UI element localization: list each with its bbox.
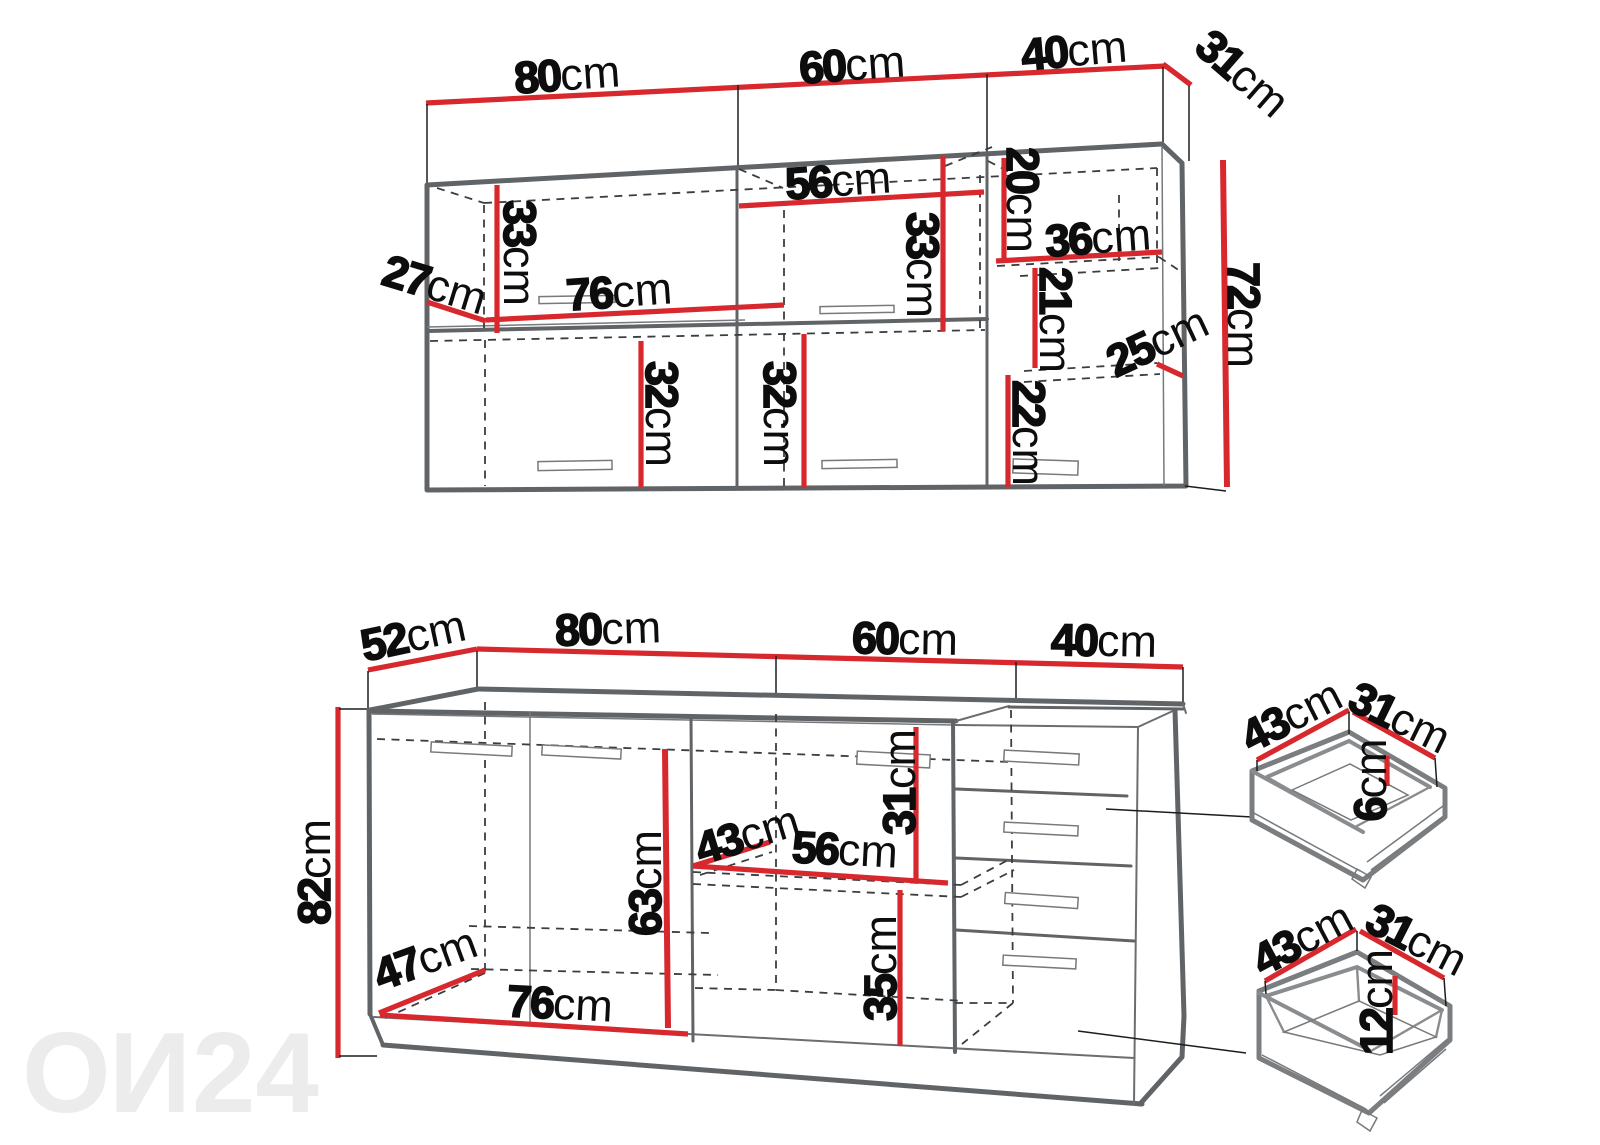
svg-text:21cm: 21cm — [1030, 267, 1081, 373]
svg-text:32cm: 32cm — [754, 361, 805, 467]
svg-text:56cm: 56cm — [783, 151, 892, 209]
svg-text:72cm: 72cm — [1218, 262, 1269, 368]
svg-text:80cm: 80cm — [512, 45, 621, 103]
svg-text:60cm: 60cm — [852, 612, 959, 665]
svg-text:40cm: 40cm — [1051, 614, 1158, 667]
svg-text:31cm: 31cm — [874, 729, 925, 835]
svg-text:76cm: 76cm — [506, 975, 615, 1031]
svg-text:N: N — [109, 1010, 191, 1137]
svg-text:80cm: 80cm — [554, 601, 662, 656]
svg-text:12cm: 12cm — [1351, 949, 1402, 1055]
svg-text:22cm: 22cm — [1003, 380, 1054, 486]
svg-text:33cm: 33cm — [897, 212, 948, 318]
svg-text:82cm: 82cm — [289, 819, 340, 925]
svg-text:O: O — [22, 1010, 111, 1137]
svg-text:6cm: 6cm — [1345, 738, 1396, 821]
svg-text:60cm: 60cm — [797, 35, 906, 93]
svg-text:40cm: 40cm — [1019, 20, 1129, 80]
svg-text:20cm: 20cm — [997, 147, 1048, 253]
svg-text:63cm: 63cm — [620, 830, 671, 936]
svg-text:32cm: 32cm — [636, 361, 687, 467]
svg-text:24: 24 — [192, 1010, 319, 1137]
svg-text:76cm: 76cm — [564, 262, 673, 320]
svg-text:36cm: 36cm — [1043, 208, 1152, 266]
svg-text:35cm: 35cm — [855, 915, 906, 1021]
svg-text:33cm: 33cm — [494, 200, 545, 306]
